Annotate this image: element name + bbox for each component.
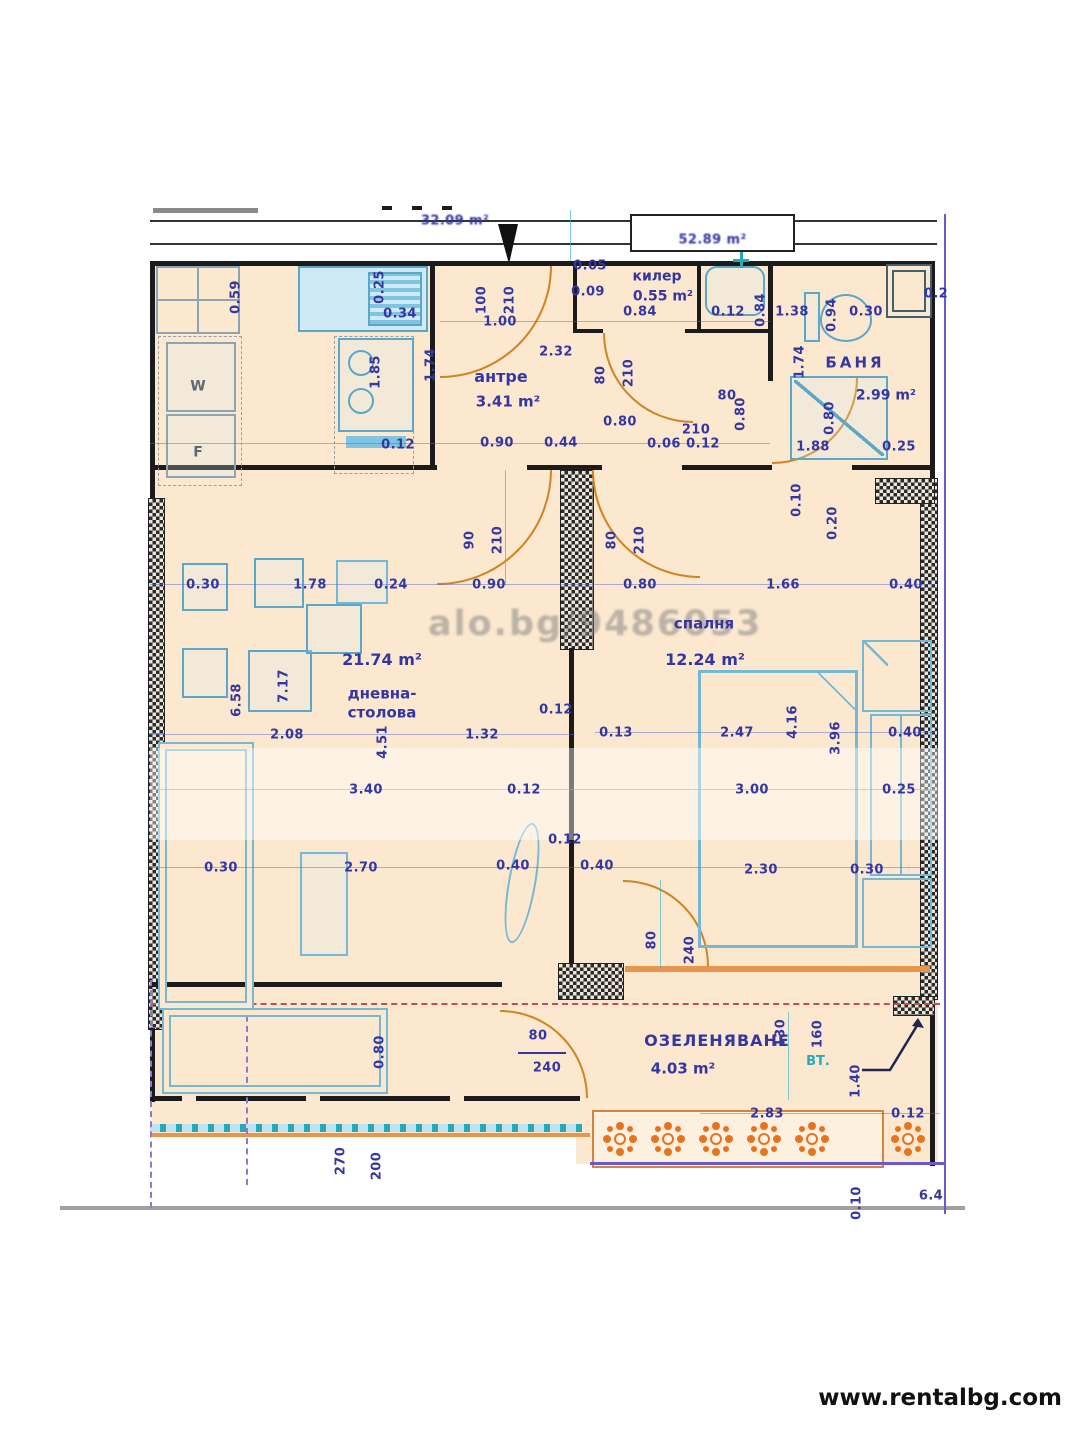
marker-label: W [190, 378, 205, 396]
dimension-label: 1.74 [425, 348, 438, 382]
room-area: 3.41 m² [476, 393, 540, 412]
balcony-wall [196, 1096, 306, 1101]
wall-right-lower [930, 998, 935, 1166]
dimension-label: 0.90 [472, 579, 506, 592]
wall-hall-bottom [852, 465, 935, 470]
wall-hatch-corner [893, 996, 935, 1016]
dimension-label: 0.80 [735, 397, 748, 431]
dimension-label: 0.40 [580, 860, 614, 873]
flower-icon [648, 1119, 688, 1159]
dimension-label: 1.38 [775, 306, 809, 319]
room-area: 0.55 m² [633, 288, 693, 306]
dimension-label: 4.51 [377, 725, 390, 759]
flower-icon [696, 1119, 736, 1159]
dimension-label: 90 [464, 531, 477, 550]
dimension-label: 3.00 [735, 784, 769, 797]
dimension-label: 270 [335, 1147, 348, 1175]
watermark-photo-id: alo.bg/9486053 [428, 604, 828, 644]
wall-closet-right [697, 261, 701, 333]
room-area: 2.99 m² [856, 387, 916, 405]
dimension-label: 0.84 [755, 293, 768, 327]
balcony-rail-edge [150, 1133, 590, 1137]
room-area: 21.74 m² [342, 650, 422, 670]
armchair [306, 604, 362, 654]
dimension-label: 0.05 [573, 260, 607, 273]
kitchen-cabinet [156, 266, 240, 334]
guide-line [570, 210, 571, 264]
dimension-label: 0.24 [374, 579, 408, 592]
dimension-label: 0.80 [603, 416, 637, 429]
dimension-label: 1.78 [293, 579, 327, 592]
dimension-label: 0.10 [791, 483, 804, 517]
dimension-label: 1.66 [766, 579, 800, 592]
room-area: 4.03 m² [651, 1060, 715, 1079]
dimension-label: 0.12 [711, 306, 745, 319]
room-name: ОЗЕЛЕНЯВАНЕ [644, 1031, 790, 1051]
dimension-label: 210 [682, 424, 710, 437]
floor-plan: 32.09 m² 52.89 m² [0, 0, 1080, 1429]
dim-guide [595, 732, 935, 733]
stove-burner [348, 388, 374, 414]
dimension-label: 80 [606, 531, 619, 550]
top-dash [382, 206, 392, 210]
dimension-label: 1.00 [483, 316, 517, 329]
floor-plan-page: 32.09 m² 52.89 m² [0, 0, 1080, 1429]
dimension-label: 0.12 [891, 1108, 925, 1121]
dimension-label: 0.12 [539, 704, 573, 717]
dimension-label: 0.2 [924, 288, 948, 301]
bedroom-door-arc [592, 470, 700, 578]
room-area: 12.24 m² [665, 650, 745, 670]
flower-icon [792, 1119, 832, 1159]
header-box-area: 52.89 m² [678, 234, 746, 247]
dimension-label: 210 [492, 526, 505, 554]
site-url: www.rentalbg.com [818, 1385, 1062, 1411]
chair [182, 648, 228, 698]
dimension-label: 0.09 [571, 286, 605, 299]
dimension-label: 0.12 [507, 784, 541, 797]
dimension-label: 0.80 [374, 1035, 387, 1069]
dimension-label: 80 [529, 1030, 548, 1043]
dimension-label: 0.34 [383, 308, 417, 321]
dimension-label: 0.94 [826, 298, 839, 332]
dimension-label: 3.40 [349, 784, 383, 797]
door-centerline [660, 880, 661, 968]
bed-fold [818, 672, 856, 710]
dimension-label: 0.90 [480, 437, 514, 450]
dim-guide [150, 867, 935, 868]
dimension-label: 210 [634, 526, 647, 554]
dimension-label: 0.25 [374, 270, 387, 304]
room-name: антре [474, 367, 527, 387]
wall-center-hatch-low [558, 963, 624, 1000]
dimension-label: 3.96 [830, 721, 843, 755]
room-name: дневна- столова [348, 684, 417, 722]
balcony-door-arc [500, 1010, 588, 1098]
marker-label: F [193, 444, 203, 462]
watermark-band [150, 748, 940, 840]
dimension-label: 0.20 [827, 506, 840, 540]
room-name: спалня [674, 615, 734, 634]
dimension-label: 240 [533, 1062, 561, 1075]
dimension-line [150, 220, 937, 222]
closet-door-arc [603, 333, 693, 423]
dimension-label: 0.10 [851, 1186, 864, 1220]
dimension-label: 0.80 [824, 401, 837, 435]
marker-label: ВТ. [806, 1054, 830, 1070]
dimension-label: 0.12 [381, 439, 415, 452]
dimension-label: 6.58 [231, 683, 244, 717]
dimension-label: 100 [476, 286, 489, 314]
dimension-label: 2.08 [270, 729, 304, 742]
right-purple-line [944, 214, 946, 1214]
dim-guide [150, 734, 575, 735]
room-name: БАНЯ [825, 354, 884, 373]
dimension-label: 80 [646, 931, 659, 950]
dimension-label: 0.25 [882, 441, 916, 454]
top-grey-mark [153, 208, 258, 213]
dimension-label: 240 [684, 936, 697, 964]
faucet-icon [733, 252, 749, 268]
dimension-label: 2.30 [744, 864, 778, 877]
dimension-label: 2.47 [720, 727, 754, 740]
dim-guide [150, 584, 935, 585]
dimension-label: 210 [504, 286, 517, 314]
sofa-horizontal [162, 1008, 388, 1094]
projection-dashed-line [150, 1003, 940, 1005]
dimension-label: 210 [623, 359, 636, 387]
dimension-label: 2.70 [344, 862, 378, 875]
top-dash [412, 206, 422, 210]
washing-machine [166, 342, 236, 412]
dimension-label: 0.12 [686, 438, 720, 451]
wall-closet-bottom [573, 329, 603, 333]
dimension-label: 0.13 [599, 727, 633, 740]
dimension-label: 80 [595, 366, 608, 385]
dimension-label: 0.06 [647, 438, 681, 451]
balcony-wall [320, 1096, 450, 1101]
dimension-label: 0.84 [623, 306, 657, 319]
balcony-wall [150, 1096, 182, 1101]
dimension-label: 160 [812, 1020, 825, 1048]
dimension-label: 200 [371, 1152, 384, 1180]
header-left-area: 32.09 m² [421, 215, 489, 228]
top-dash [442, 206, 452, 210]
dimension-label: 0.30 [186, 579, 220, 592]
left-purple-dashed [150, 980, 152, 1208]
total-area-box: 52.89 m² [630, 214, 795, 252]
dimension-label: 0.40 [496, 860, 530, 873]
dimension-label: 0.30 [849, 306, 883, 319]
dimension-label: 1.85 [370, 355, 383, 389]
dimension-label: 0.44 [544, 437, 578, 450]
dimension-label: 0.80 [623, 579, 657, 592]
dimension-label: 1.32 [465, 729, 499, 742]
flower-icon [888, 1119, 928, 1159]
dimension-label: 2.32 [539, 346, 573, 359]
dimension-label: 0.59 [230, 280, 243, 314]
dimension-label: 1.74 [794, 345, 807, 379]
dimension-label: 0.40 [888, 727, 922, 740]
bedroom-window-sill [625, 966, 930, 972]
dimension-label: 1.40 [850, 1064, 863, 1098]
dimension-line [150, 243, 937, 245]
dimension-label: 7.17 [278, 669, 291, 703]
dimension-label: 2.83 [750, 1108, 784, 1121]
wall-hatch-bath [875, 478, 935, 504]
dimension-label: 0.25 [882, 784, 916, 797]
balcony-rail [150, 1124, 582, 1132]
fraction-line [518, 1052, 566, 1054]
bottom-grey-line [60, 1206, 965, 1210]
dimension-label: 0.30 [204, 862, 238, 875]
dimension-label: 0.12 [548, 834, 582, 847]
dimension-label: 4.16 [787, 705, 800, 739]
vt-arrow-icon [858, 1014, 930, 1096]
dimension-label: 1.88 [796, 441, 830, 454]
flower-icon [600, 1119, 640, 1159]
terrace-bottom-line [590, 1162, 946, 1165]
flower-icon [744, 1119, 784, 1159]
dimension-label: 6.4 [919, 1190, 943, 1203]
room-name: килер [632, 268, 681, 286]
wardrobe-fold [862, 640, 888, 666]
dimension-label: 0.40 [889, 579, 923, 592]
dimension-label: 0.30 [850, 864, 884, 877]
wardrobe-bottom [862, 878, 932, 948]
